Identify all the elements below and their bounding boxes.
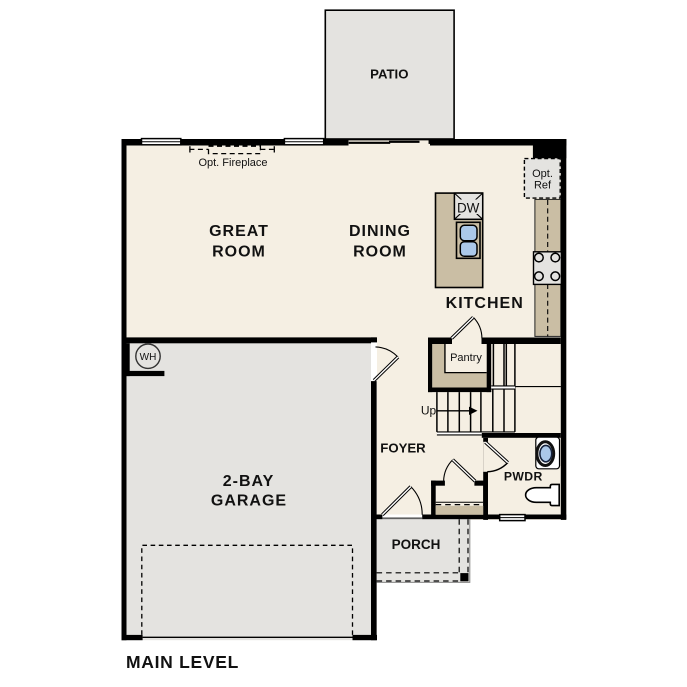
svg-text:Opt. Fireplace: Opt. Fireplace <box>198 157 267 169</box>
svg-text:Opt.: Opt. <box>532 168 553 180</box>
svg-text:Ref: Ref <box>534 180 552 192</box>
svg-text:PATIO: PATIO <box>370 67 408 82</box>
svg-text:Pantry: Pantry <box>450 352 482 364</box>
svg-text:ROOM: ROOM <box>212 244 266 261</box>
svg-text:GREAT: GREAT <box>209 223 269 240</box>
svg-text:MAIN LEVEL: MAIN LEVEL <box>126 652 239 672</box>
svg-text:GARAGE: GARAGE <box>211 493 287 510</box>
svg-text:2-BAY: 2-BAY <box>223 473 275 490</box>
svg-text:WH: WH <box>140 352 157 363</box>
svg-text:PORCH: PORCH <box>392 537 441 552</box>
svg-text:KITCHEN: KITCHEN <box>446 295 524 312</box>
svg-text:DW: DW <box>457 201 480 216</box>
svg-text:FOYER: FOYER <box>380 441 426 456</box>
svg-text:Up: Up <box>421 404 437 418</box>
svg-text:PWDR: PWDR <box>504 469 543 483</box>
svg-text:ROOM: ROOM <box>353 244 407 261</box>
svg-text:DINING: DINING <box>349 223 411 240</box>
